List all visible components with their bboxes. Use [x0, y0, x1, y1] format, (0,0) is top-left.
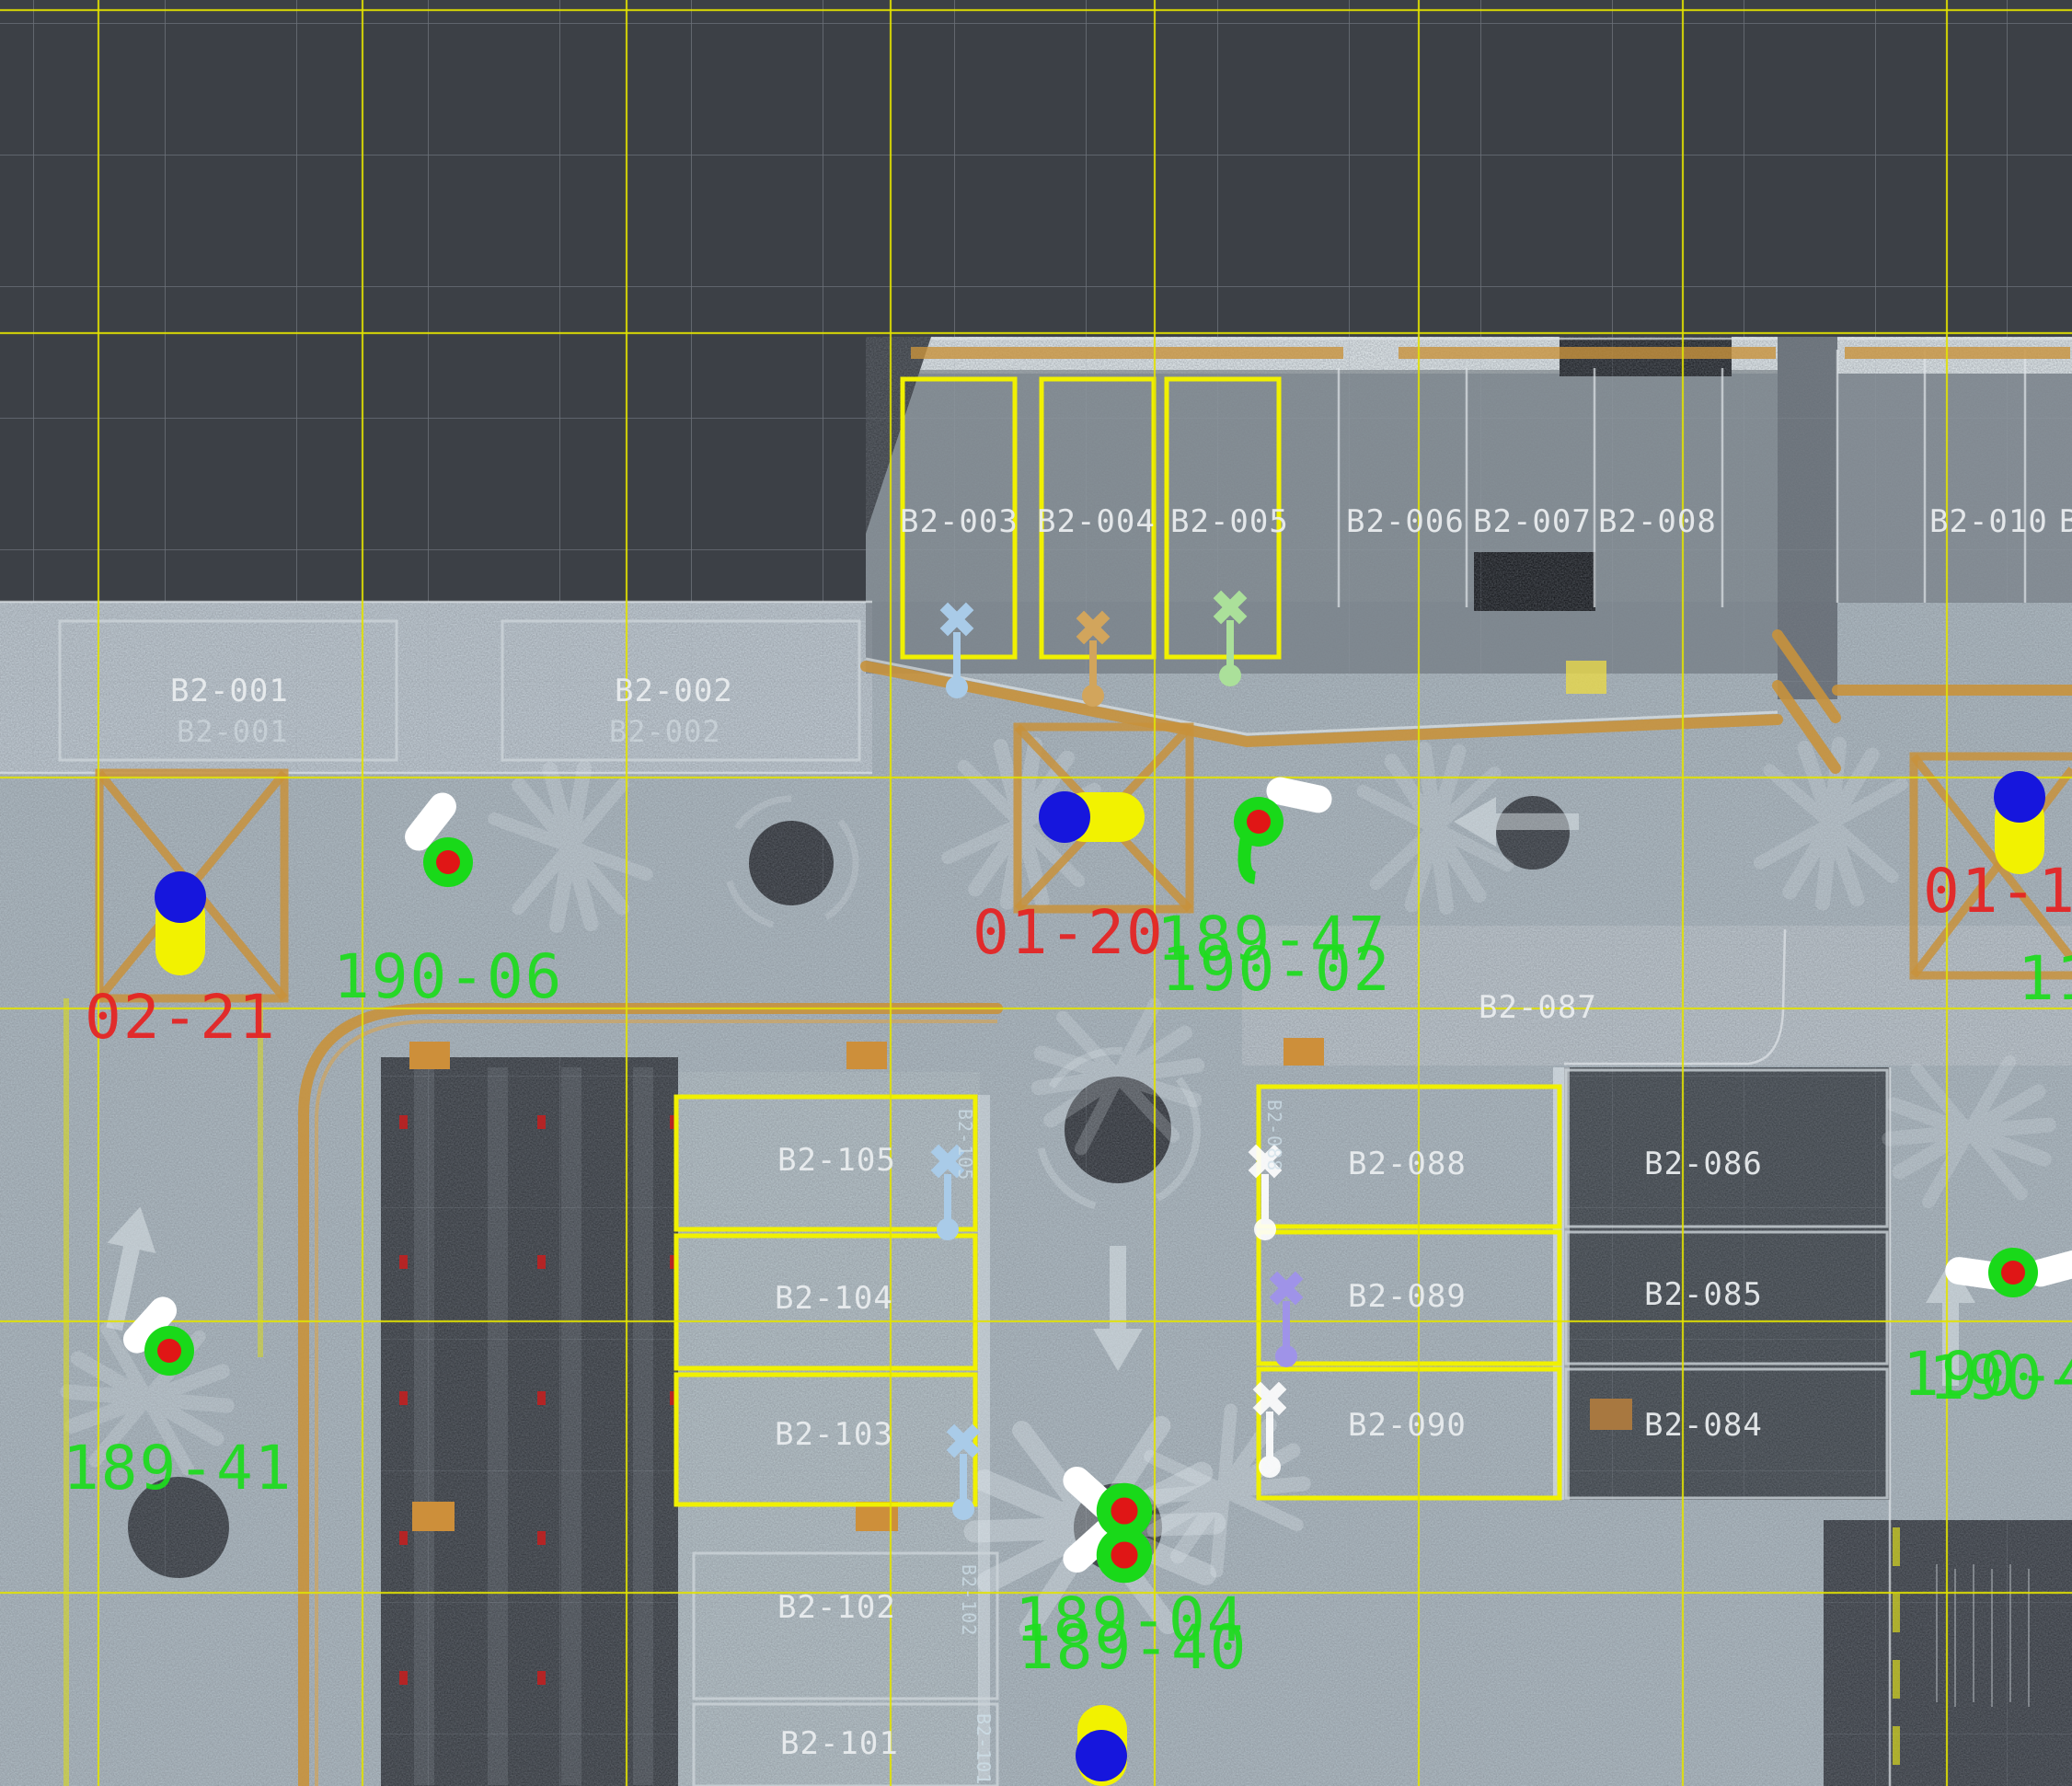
stall-label-b2-087[interactable]: B2-087	[1479, 989, 1597, 1026]
stall-label-b2-003[interactable]: B2-003	[900, 503, 1019, 540]
stall-label-b2-104[interactable]: B2-104	[775, 1280, 893, 1317]
station-marker-02-21[interactable]	[155, 871, 206, 975]
stall-label-b2-086[interactable]: B2-086	[1644, 1146, 1763, 1182]
station-label-189-41[interactable]: 189-41	[63, 1433, 293, 1504]
painted-floor-text: B2-001	[177, 714, 289, 749]
plan-canvas[interactable]: B2-001 B2-002 B2-001 B2-002 B2-003 B2-00…	[0, 0, 2072, 1786]
stall-label-b2-105[interactable]: B2-105	[777, 1142, 896, 1179]
vertical-stall-label: B2-105	[954, 1109, 976, 1181]
station-label-02-21[interactable]: 02-21	[85, 982, 277, 1053]
stall-label-b2-101[interactable]: B2-101	[780, 1725, 899, 1762]
station-marker-01-20[interactable]	[1039, 791, 1145, 843]
station-label-119[interactable]: 119	[2018, 943, 2072, 1014]
station-label-01-20[interactable]: 01-20	[973, 897, 1165, 968]
stall-label-b2-085[interactable]: B2-085	[1644, 1276, 1763, 1313]
stall-label-b2-005[interactable]: B2-005	[1170, 503, 1289, 540]
vertical-stall-label: B2-102	[958, 1564, 980, 1636]
stall-label-b2-084[interactable]: B2-084	[1644, 1407, 1763, 1444]
stall-label-b2-089[interactable]: B2-089	[1348, 1278, 1467, 1315]
stall-label-b2-090[interactable]: B2-090	[1348, 1407, 1467, 1444]
stall-label-partial[interactable]: B	[2059, 503, 2072, 540]
cad-viewport[interactable]: B2-001 B2-002 B2-001 B2-002 B2-003 B2-00…	[0, 0, 2072, 1786]
stall-label-b2-007[interactable]: B2-007	[1473, 503, 1592, 540]
stall-label-b2-002[interactable]: B2-002	[615, 673, 733, 709]
vertical-stall-label: B2-101	[973, 1713, 995, 1785]
station-marker-bottom[interactable]	[1076, 1705, 1127, 1786]
station-label-189-40[interactable]: 189-40	[1018, 1612, 1248, 1683]
stall-label-b2-102[interactable]: B2-102	[777, 1589, 896, 1626]
station-label-190-02[interactable]: 190-02	[1161, 934, 1391, 1005]
station-label-190-06[interactable]: 190-06	[333, 941, 563, 1012]
stall-label-b2-004[interactable]: B2-004	[1037, 503, 1156, 540]
stall-label-b2-001[interactable]: B2-001	[170, 673, 289, 709]
stall-label-b2-008[interactable]: B2-008	[1598, 503, 1717, 540]
stall-label-b2-103[interactable]: B2-103	[775, 1416, 893, 1453]
station-label-190-4-echo[interactable]: 190-4	[1928, 1342, 2072, 1413]
stall-label-b2-010[interactable]: B2-010	[1929, 503, 2048, 540]
stall-label-b2-006[interactable]: B2-006	[1346, 503, 1465, 540]
painted-floor-text: B2-002	[609, 714, 721, 749]
vertical-stall-label: B2-088	[1263, 1100, 1285, 1171]
stall-label-b2-088[interactable]: B2-088	[1348, 1146, 1467, 1182]
station-label-01-1[interactable]: 01-1	[1923, 856, 2072, 927]
